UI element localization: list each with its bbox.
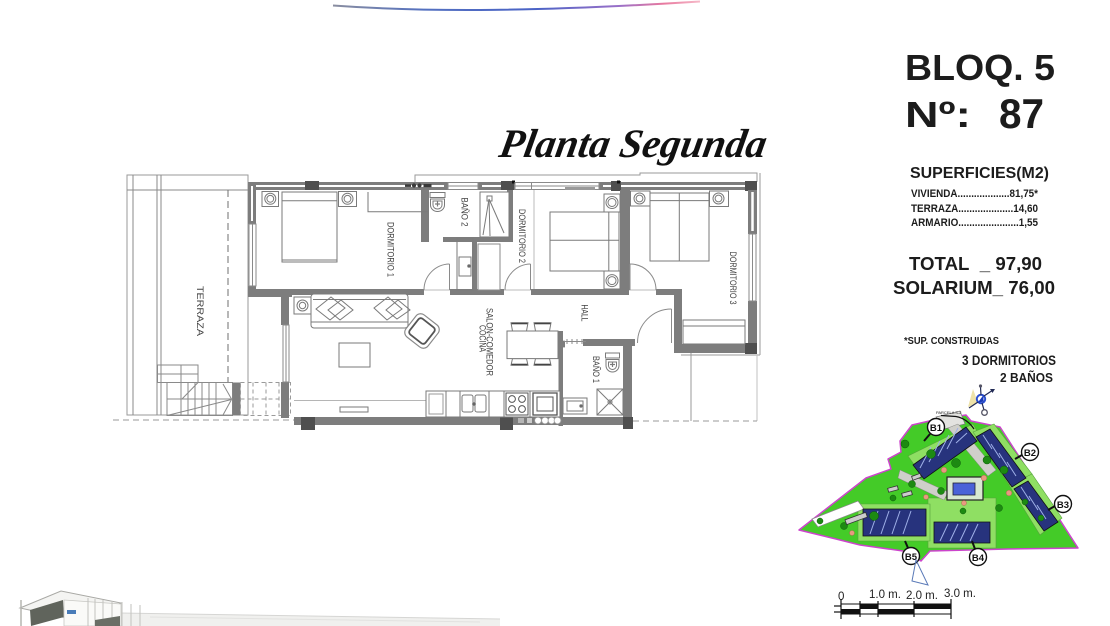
svg-text:BLOQ. 5: BLOQ. 5 xyxy=(905,47,1055,88)
svg-text:1.0 m.: 1.0 m. xyxy=(869,589,901,601)
svg-text:*SUP. CONSTRUIDAS: *SUP. CONSTRUIDAS xyxy=(904,336,999,347)
svg-text:ARMARIO......................1: ARMARIO......................1,55 xyxy=(911,217,1038,229)
svg-text:2 BAÑOS: 2 BAÑOS xyxy=(1000,370,1053,385)
svg-text:2.0 m.: 2.0 m. xyxy=(906,590,938,602)
svg-text:VIVIENDA...................81,: VIVIENDA...................81,75* xyxy=(911,188,1039,200)
svg-text:B2: B2 xyxy=(1024,448,1036,459)
svg-text:SOLARIUM_ 76,00: SOLARIUM_ 76,00 xyxy=(893,277,1055,298)
svg-text:PARCELA S-2: PARCELA S-2 xyxy=(936,410,962,415)
svg-text:SUPERFICIES(M2): SUPERFICIES(M2) xyxy=(910,165,1049,182)
svg-text:3.0 m.: 3.0 m. xyxy=(944,588,976,600)
svg-text:DORMITORIO 2: DORMITORIO 2 xyxy=(517,209,527,263)
svg-text:B3: B3 xyxy=(1057,500,1069,511)
svg-text:Planta Segunda: Planta Segunda xyxy=(495,121,770,166)
svg-text:DORMITORIO 1: DORMITORIO 1 xyxy=(386,222,396,277)
svg-text:87: 87 xyxy=(999,90,1044,137)
svg-text:BAÑO 2: BAÑO 2 xyxy=(460,198,470,227)
svg-text:DORMITORIO 3: DORMITORIO 3 xyxy=(728,252,738,305)
svg-text:TERRAZA....................14,: TERRAZA....................14,60 xyxy=(911,203,1038,215)
svg-text:TERRAZA: TERRAZA xyxy=(195,286,205,336)
svg-text:B1: B1 xyxy=(930,423,943,434)
svg-text:Nº:: Nº: xyxy=(905,94,971,135)
svg-text:3 DORMITORIOS: 3 DORMITORIOS xyxy=(962,353,1056,368)
svg-text:HALL: HALL xyxy=(580,305,590,322)
svg-text:TOTAL _ 97,90: TOTAL _ 97,90 xyxy=(909,253,1042,274)
svg-text:BAÑO 1: BAÑO 1 xyxy=(591,356,601,383)
svg-text:COCINA: COCINA xyxy=(478,325,488,352)
svg-text:B4: B4 xyxy=(972,553,985,564)
